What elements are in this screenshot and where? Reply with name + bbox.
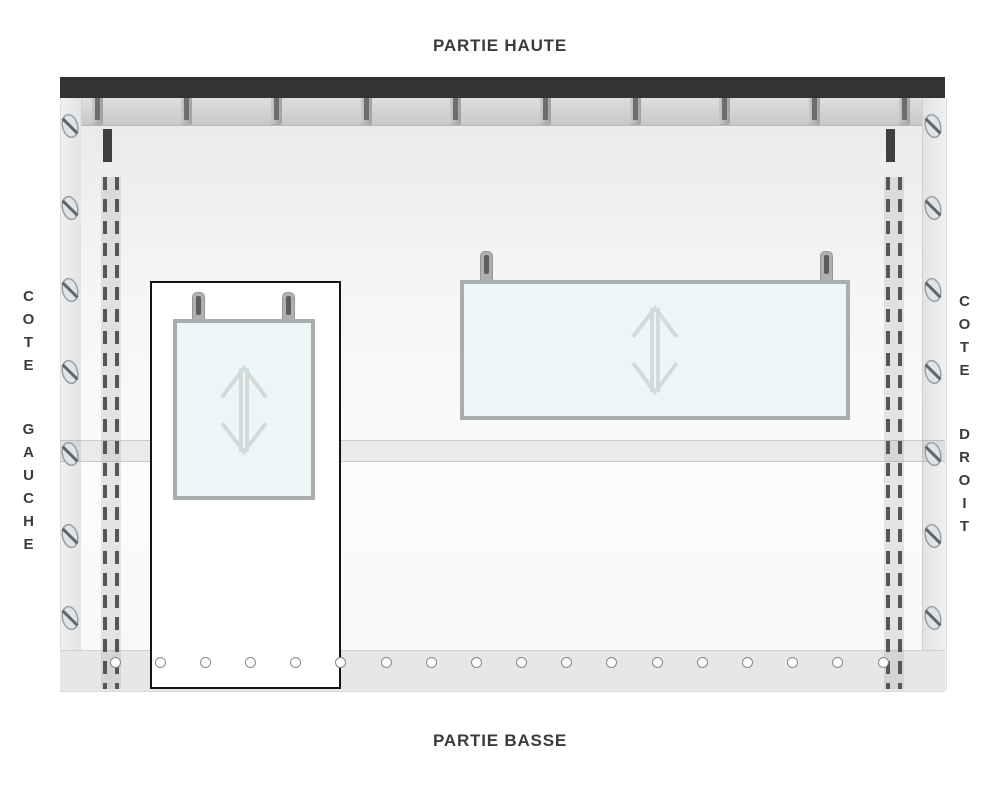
hanger-tab-icon bbox=[820, 251, 833, 282]
screw-head-icon bbox=[59, 602, 81, 634]
bracket-slot bbox=[95, 97, 100, 120]
eyelet-hole-icon bbox=[516, 657, 527, 668]
screw-head-icon bbox=[922, 356, 944, 388]
eyelet-hole-icon bbox=[697, 657, 708, 668]
hanger-tab-icon bbox=[480, 251, 493, 282]
window-right bbox=[460, 280, 850, 420]
bracket-slot bbox=[633, 97, 638, 120]
screw-head-icon bbox=[59, 438, 81, 470]
bracket-slot bbox=[274, 97, 279, 120]
dashed-line bbox=[115, 177, 119, 689]
window-left bbox=[173, 319, 315, 500]
right-seam-dashed-lines bbox=[884, 177, 904, 689]
hanger-tab-icon bbox=[192, 292, 205, 322]
rail-bracket-icon bbox=[899, 97, 910, 124]
label-cote-droit: COTE DROIT bbox=[957, 293, 972, 541]
eyelet-hole-icon bbox=[878, 657, 889, 668]
right-seam-mark bbox=[886, 129, 895, 162]
label-partie-haute: PARTIE HAUTE bbox=[0, 36, 1000, 56]
eyelet-hole-icon bbox=[606, 657, 617, 668]
bracket-slot bbox=[543, 97, 548, 120]
vertical-double-arrow-icon bbox=[625, 301, 685, 399]
hanger-tab-slot bbox=[286, 296, 291, 315]
screw-head-icon bbox=[59, 520, 81, 552]
dashed-line bbox=[898, 177, 902, 689]
dashed-line bbox=[886, 177, 890, 689]
vertical-double-arrow-icon bbox=[214, 361, 274, 459]
rail-bracket-icon bbox=[361, 97, 372, 124]
rail-bracket-icon bbox=[630, 97, 641, 124]
label-partie-basse: PARTIE BASSE bbox=[0, 731, 1000, 751]
screw-head-icon bbox=[922, 438, 944, 470]
eyelet-hole-icon bbox=[471, 657, 482, 668]
eyelet-hole-icon bbox=[155, 657, 166, 668]
bracket-slot bbox=[184, 97, 189, 120]
eyelet-hole-icon bbox=[832, 657, 843, 668]
eyelet-hole-icon bbox=[742, 657, 753, 668]
rail-bracket-icon bbox=[540, 97, 551, 124]
top-rail bbox=[60, 77, 945, 98]
tarpaulin-diagram-canvas: PARTIE HAUTE PARTIE BASSE COTE GAUCHE CO… bbox=[0, 0, 1000, 800]
eyelet-hole-icon bbox=[652, 657, 663, 668]
dashed-line bbox=[103, 177, 107, 689]
eyelet-hole-icon bbox=[335, 657, 346, 668]
left-seam-dashed-lines bbox=[101, 177, 121, 689]
eyelet-hole-icon bbox=[200, 657, 211, 668]
eyelet-hole-icon bbox=[110, 657, 121, 668]
bracket-slot bbox=[722, 97, 727, 120]
screw-head-icon bbox=[922, 520, 944, 552]
eyelet-hole-icon bbox=[787, 657, 798, 668]
rail-bracket-icon bbox=[271, 97, 282, 124]
eyelet-hole-icon bbox=[290, 657, 301, 668]
bracket-slot bbox=[364, 97, 369, 120]
eyelet-hole-icon bbox=[561, 657, 572, 668]
label-cote-gauche: COTE GAUCHE bbox=[21, 288, 36, 559]
rail-bracket-icon bbox=[450, 97, 461, 124]
bracket-slot bbox=[453, 97, 458, 120]
hanger-tab-icon bbox=[282, 292, 295, 322]
screw-head-icon bbox=[59, 356, 81, 388]
hanger-tab-slot bbox=[824, 255, 829, 274]
eyelet-hole-icon bbox=[381, 657, 392, 668]
rail-bracket-icon bbox=[181, 97, 192, 124]
screw-head-icon bbox=[59, 110, 81, 142]
eyelet-hole-icon bbox=[245, 657, 256, 668]
bracket-slot bbox=[812, 97, 817, 120]
rail-bracket-icon bbox=[809, 97, 820, 124]
rail-bracket-icon bbox=[92, 97, 103, 124]
screw-head-icon bbox=[922, 192, 944, 224]
left-seam-mark bbox=[103, 129, 112, 162]
screw-head-icon bbox=[59, 192, 81, 224]
hanger-tab-slot bbox=[196, 296, 201, 315]
screw-head-icon bbox=[922, 110, 944, 142]
bracket-slot bbox=[902, 97, 907, 120]
rail-bracket-icon bbox=[719, 97, 730, 124]
screw-head-icon bbox=[922, 274, 944, 306]
screw-head-icon bbox=[59, 274, 81, 306]
hanger-tab-slot bbox=[484, 255, 489, 274]
screw-head-icon bbox=[922, 602, 944, 634]
eyelet-hole-icon bbox=[426, 657, 437, 668]
